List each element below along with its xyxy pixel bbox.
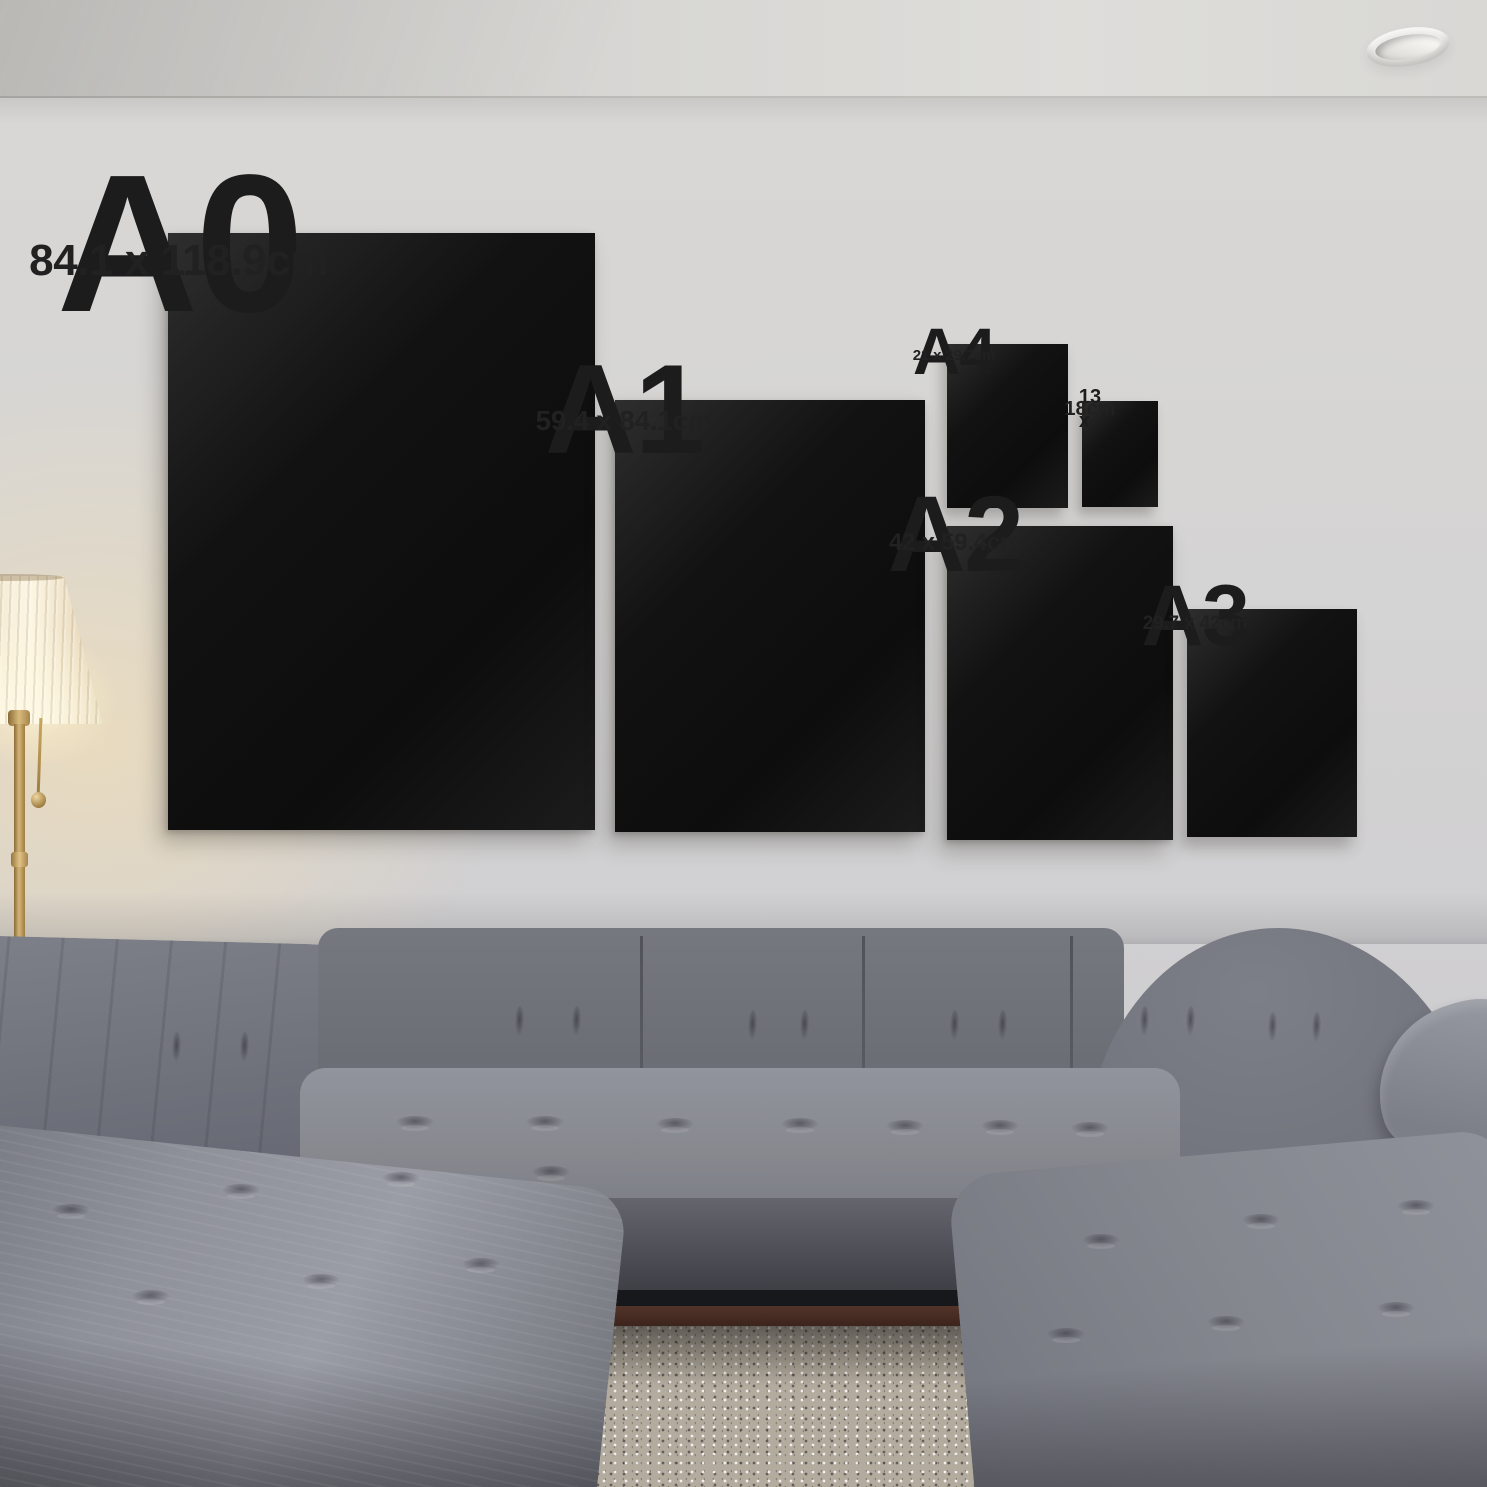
sofa-chaise-tuft: [532, 1166, 570, 1179]
sofa-seat-tuft: [656, 1118, 694, 1131]
sofa-chaise-tuft: [1207, 1316, 1245, 1329]
ceiling-wall-shadow: [0, 98, 1487, 124]
sofa-chaise-tuft: [302, 1274, 340, 1287]
frame-a4-dimensions: 21 x 29.7cm: [913, 348, 996, 363]
sofa-chaise-tuft: [382, 1172, 420, 1185]
recessed-light-bulb: [1374, 30, 1443, 64]
sofa-seat-tuft: [526, 1116, 564, 1129]
sofa-chaise-tuft: [462, 1258, 500, 1271]
lamp-stem-collar: [11, 852, 28, 867]
sofa-chaise-tuft: [1082, 1234, 1120, 1247]
lamp-stem: [14, 724, 25, 960]
sofa-chaise-tuft: [1397, 1200, 1435, 1213]
sofa-seat-tuft: [781, 1118, 819, 1131]
frame-a1: A1 59.4 x 84.1cm: [615, 400, 925, 832]
sofa-chaise-tuft: [1242, 1214, 1280, 1227]
frame-a3: A3 29.7 x 42cm: [1187, 609, 1357, 837]
frame-a3-dimensions: 29.7 x 42cm: [1143, 614, 1248, 633]
frame-a2: A2 42 x 59.4cm: [947, 526, 1173, 840]
frame-a0: A0 84.1 x 118.9cm: [168, 233, 595, 830]
sofa-seat-tuft: [396, 1116, 434, 1129]
sofa-chaise-tuft: [222, 1184, 260, 1197]
sofa-seat-tuft: [1071, 1122, 1109, 1135]
sofa-chaise-tuft: [132, 1290, 170, 1303]
frame-a2-dimensions: 42 x 59.4cm: [889, 531, 1021, 555]
frame-13x18-size-line2: 18cm: [1064, 397, 1115, 421]
sofa-chaise-tuft: [52, 1204, 90, 1217]
ceiling: [0, 0, 1487, 98]
lamp-pull-chain-ball: [31, 792, 46, 808]
frame-a1-dimensions: 59.4 x 84.1cm: [536, 407, 713, 435]
living-room-scene: A0 84.1 x 118.9cm A1 59.4 x 84.1cm A4 21…: [0, 0, 1487, 1487]
sofa-chaise-tuft: [1047, 1328, 1085, 1341]
sofa-seat-tuft: [886, 1120, 924, 1133]
sofa-seat-tuft: [981, 1120, 1019, 1133]
sofa-chaise-tuft: [1377, 1302, 1415, 1315]
frame-13x18: 13 x 18cm: [1082, 401, 1158, 507]
frame-a0-dimensions: 84.1 x 118.9cm: [29, 239, 329, 283]
